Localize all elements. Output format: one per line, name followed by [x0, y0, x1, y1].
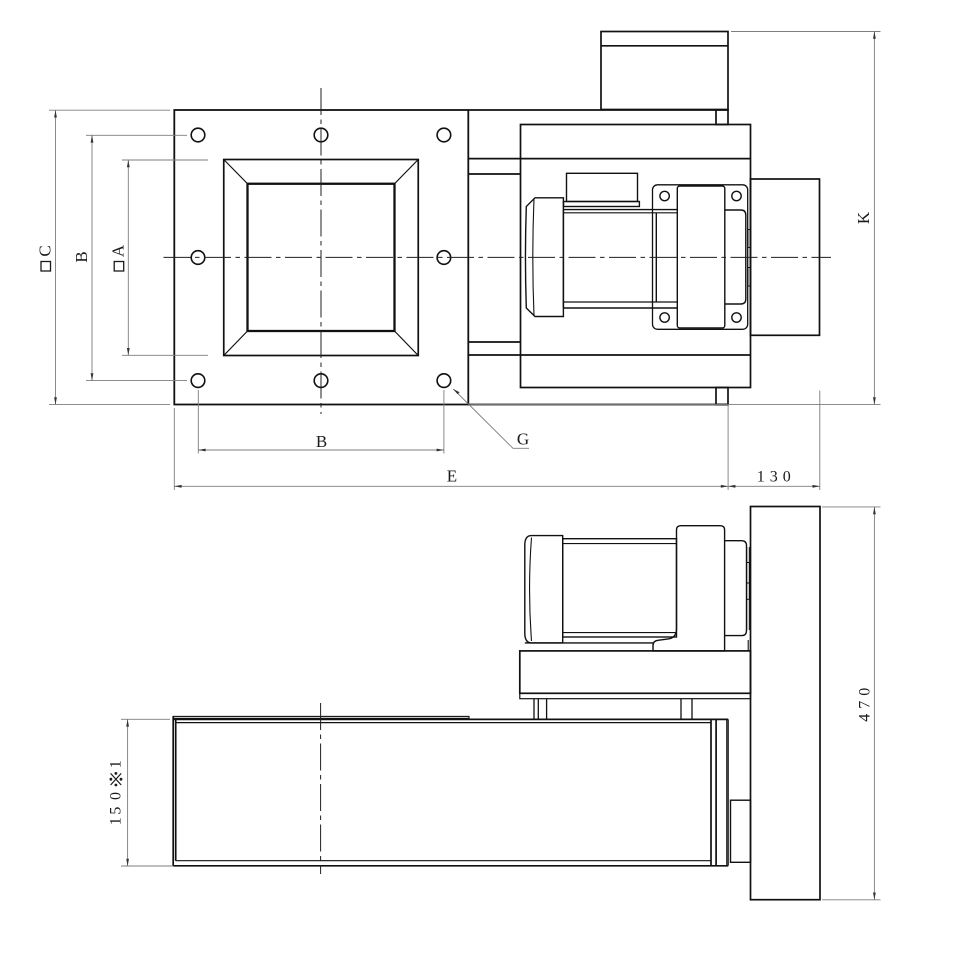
svg-text:470: 470	[857, 683, 874, 722]
svg-text:B: B	[72, 251, 91, 262]
svg-text:1: 1	[108, 817, 125, 825]
svg-text:0: 0	[108, 792, 125, 800]
svg-text:5: 5	[108, 807, 125, 815]
svg-text:1: 1	[108, 760, 125, 768]
svg-text:B: B	[316, 432, 327, 451]
svg-text:K: K	[854, 211, 873, 224]
svg-text:E: E	[447, 466, 457, 485]
svg-text:A: A	[109, 244, 128, 257]
svg-text:130: 130	[757, 469, 796, 486]
svg-text:G: G	[517, 430, 529, 449]
svg-text:C: C	[35, 245, 54, 256]
